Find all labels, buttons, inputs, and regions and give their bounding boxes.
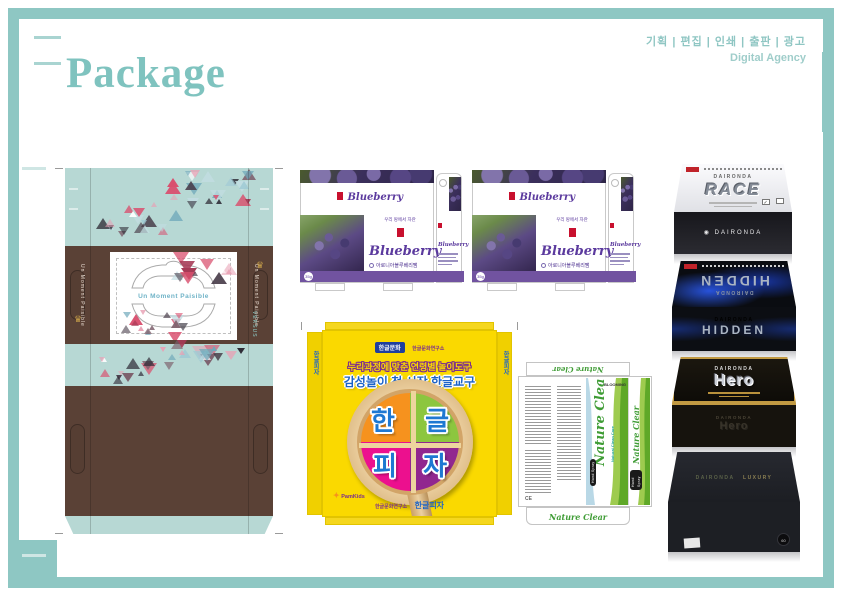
crown-icon: ♛ bbox=[256, 260, 264, 271]
luxury-box-front: 60 bbox=[668, 502, 800, 552]
front-brand-logo: ◉ DAIRONDA bbox=[674, 229, 792, 236]
checkbox-icon bbox=[776, 198, 784, 204]
side-face: Nature Clear Hand Spray bbox=[628, 378, 650, 505]
brand-logo: DAIRONDA bbox=[672, 289, 796, 295]
triangle-shape bbox=[168, 354, 176, 360]
triangle-shape bbox=[201, 171, 215, 182]
fold-dash bbox=[260, 208, 269, 210]
right-flap: 한글피자 bbox=[497, 332, 512, 515]
triangle-shape bbox=[179, 349, 191, 358]
circle-bullet-icon bbox=[369, 263, 374, 268]
side-label: 한글피자 bbox=[501, 351, 510, 375]
triangle-shape bbox=[126, 358, 140, 369]
triangle-shape bbox=[118, 376, 124, 381]
slice-gap bbox=[411, 391, 416, 493]
top-flap-logo: Blueberry bbox=[509, 187, 575, 205]
fold-dash bbox=[260, 188, 269, 190]
option-row: 아로니아블루베리쨈 bbox=[369, 262, 431, 269]
pizza-graphic: 한 글 피 자 bbox=[357, 389, 463, 495]
triangle-shape bbox=[143, 357, 155, 366]
fine-print-lines bbox=[674, 392, 794, 397]
triangle-shape bbox=[96, 218, 110, 229]
main-logo: Blueberry bbox=[541, 224, 603, 260]
berry-photo-strip bbox=[300, 170, 434, 183]
triangle-shape bbox=[157, 224, 167, 232]
white-label bbox=[684, 537, 701, 548]
title-line-decoration bbox=[34, 62, 61, 65]
brand-text: Un Moment Paisible bbox=[110, 293, 237, 300]
fine-print-line bbox=[702, 265, 786, 267]
pizza-letter: 피 bbox=[373, 446, 397, 483]
triangle-shape bbox=[118, 371, 124, 376]
right-accent-bar bbox=[822, 52, 833, 132]
triangle-shape bbox=[133, 208, 145, 217]
luxury-box-top: DAIRONDA LUXURY bbox=[668, 452, 800, 502]
blueberry-bowl-photo bbox=[472, 215, 536, 271]
crop-mark bbox=[301, 322, 302, 330]
top-flap-logo: Blueberry bbox=[337, 187, 403, 205]
triangle-shape bbox=[212, 190, 222, 198]
reflection bbox=[668, 552, 800, 562]
triangle-shape bbox=[185, 171, 191, 176]
triangle-shape bbox=[199, 351, 211, 360]
triangle-shape bbox=[134, 222, 148, 233]
fine-print-block bbox=[525, 386, 551, 444]
red-square-logo bbox=[509, 192, 515, 200]
triangle-cluster bbox=[160, 168, 260, 213]
triangle-shape bbox=[113, 376, 123, 384]
tagline: 우리 땅에서 자란 bbox=[369, 217, 431, 223]
crown-icon: ♛ bbox=[74, 314, 82, 325]
product-name: Hero bbox=[672, 420, 796, 432]
triangle-shape bbox=[187, 198, 199, 207]
badge-row: 한글문화 한글문화연구소 bbox=[323, 337, 496, 355]
triangle-shape bbox=[167, 178, 179, 187]
fine-print-block bbox=[525, 450, 551, 494]
red-square-logo bbox=[610, 223, 614, 228]
triangle-shape bbox=[99, 357, 105, 362]
pizza-letter: 자 bbox=[423, 446, 447, 483]
product-name: LUXURY bbox=[743, 475, 772, 481]
red-label-chip bbox=[684, 264, 697, 269]
product-box-race: DAIRONDA RACE ✓ ◉ DAIRONDA bbox=[674, 164, 792, 264]
product-name: Hero bbox=[674, 372, 794, 390]
triangle-shape bbox=[124, 205, 134, 213]
side-tab-text: Blueberry bbox=[610, 215, 632, 265]
bottom-flap: Nature Clear bbox=[526, 507, 630, 525]
triangle-shape bbox=[204, 345, 220, 357]
product-name: HIDDEN bbox=[672, 273, 796, 289]
triangle-shape bbox=[122, 373, 134, 382]
page-title: Package bbox=[66, 49, 226, 98]
red-square-logo bbox=[397, 228, 404, 237]
triangle-shape bbox=[164, 362, 174, 370]
berry-twig-photo bbox=[621, 177, 633, 211]
triangle-shape bbox=[142, 361, 154, 370]
fine-print-line bbox=[438, 264, 452, 266]
triangle-shape bbox=[160, 347, 166, 352]
option-label: 아로니아블루베리쨈 bbox=[376, 262, 417, 269]
fine-print-line bbox=[704, 168, 782, 170]
triangle-cluster bbox=[90, 200, 185, 244]
weight-badge: 35g bbox=[304, 272, 313, 281]
headline-small: 누리과정에 맞춘 연령별 놀이도구 bbox=[323, 360, 496, 373]
triangle-shape bbox=[190, 170, 200, 178]
fine-print-line bbox=[438, 257, 456, 259]
bottom-flap bbox=[383, 283, 413, 291]
top-flap: Nature Clear bbox=[526, 362, 630, 376]
fine-print-line bbox=[709, 202, 757, 204]
triangle-shape bbox=[170, 194, 178, 200]
top-name-upside-down: DAIRONDA HIDDEN bbox=[672, 273, 796, 295]
triangle-shape bbox=[225, 177, 237, 186]
product-box-hidden: DAIRONDA HIDDEN DAIRONDA HIDDEN bbox=[672, 261, 796, 361]
nature-clear-dieline: Nature Clear CE ▲ BLOOMING Nature Clear … bbox=[518, 362, 652, 525]
fine-print-line bbox=[708, 392, 760, 394]
blueberry-script: Blueberry bbox=[369, 244, 441, 259]
crop-mark bbox=[517, 322, 518, 330]
fine-print-panel: CE bbox=[520, 378, 586, 505]
blueberry-dieline-2: Blueberry 우리 땅에서 자란 Blueberry 아로니아블루베리쨈 … bbox=[469, 165, 637, 293]
triangle-shape bbox=[187, 201, 197, 209]
corner-label: VERSUS bbox=[251, 311, 257, 338]
triangle-shape bbox=[118, 231, 126, 237]
pizza-letter: 글 bbox=[425, 401, 449, 438]
bottom-flap bbox=[487, 283, 517, 291]
brand-note: 한글문화연구소 bbox=[412, 346, 444, 352]
purple-band: 35g bbox=[472, 271, 636, 282]
triangle-shape bbox=[131, 361, 137, 366]
triangle-shape bbox=[169, 210, 183, 221]
crop-mark bbox=[55, 168, 63, 169]
top-logo-row: DAIRONDA LUXURY bbox=[668, 466, 800, 484]
product-name: Nature Clear bbox=[631, 406, 641, 464]
product-name: HIDDEN bbox=[672, 323, 796, 337]
top-flap bbox=[325, 322, 494, 330]
fold-dash bbox=[69, 188, 78, 190]
handle-cutout bbox=[70, 424, 85, 474]
fine-print-line bbox=[610, 264, 624, 266]
red-square-logo bbox=[438, 223, 442, 228]
category-label: Hand Spray bbox=[590, 459, 596, 486]
agency-text: Digital Agency bbox=[646, 52, 806, 64]
hidden-box-top: DAIRONDA HIDDEN bbox=[672, 261, 796, 307]
hangul-pizza-package: 한글피자 한글피자 한글문화 한글문화연구소 누리과정에 맞춘 연령별 놀이도구… bbox=[307, 322, 512, 525]
left-dash-decoration bbox=[22, 554, 46, 557]
red-label-chip bbox=[686, 167, 699, 172]
triangle-shape bbox=[140, 225, 150, 233]
main-logo: Blueberry bbox=[369, 224, 431, 260]
crop-mark bbox=[275, 168, 283, 169]
product-subtitle: Natural Clean Care bbox=[610, 426, 615, 462]
hang-hole bbox=[611, 179, 619, 187]
triangle-shape bbox=[141, 363, 157, 375]
title-line-decoration bbox=[34, 36, 61, 39]
product-box-luxury: DAIRONDA LUXURY 60 bbox=[668, 452, 800, 562]
berry-twig-photo bbox=[449, 177, 461, 211]
weight-badge: 35g bbox=[476, 272, 485, 281]
purple-band: 35g bbox=[300, 271, 464, 282]
blueberry-script: Blueberry bbox=[347, 192, 403, 203]
blueberry-script: Blueberry bbox=[541, 244, 613, 259]
footer-note: 한글문화연구소 bbox=[375, 504, 407, 510]
corner-accent-block bbox=[8, 540, 57, 588]
triangle-shape bbox=[205, 198, 213, 204]
dieline-bottom-panel bbox=[65, 386, 273, 516]
blueberry-dieline-1: Blueberry 우리 땅에서 자란 Blueberry 아로니아블루베리쨈 … bbox=[297, 165, 465, 293]
triangle-shape bbox=[200, 354, 216, 366]
handle-cutout bbox=[253, 424, 268, 474]
left-flap: 한글피자 bbox=[307, 332, 322, 515]
triangle-shape bbox=[129, 211, 137, 217]
left-dash-decoration bbox=[22, 167, 46, 170]
hidden-box-front: DAIRONDA HIDDEN bbox=[672, 307, 796, 351]
triangle-shape bbox=[199, 349, 215, 361]
triangle-shape bbox=[108, 225, 114, 230]
option-row: 아로니아블루베리쨈 bbox=[541, 262, 603, 269]
triangle-shape bbox=[237, 348, 245, 354]
pizza-letter: 한 bbox=[371, 401, 395, 438]
triangle-shape bbox=[213, 195, 219, 200]
red-square-logo bbox=[337, 192, 343, 200]
berry-photo-strip bbox=[472, 170, 606, 183]
triangle-shape bbox=[186, 172, 198, 181]
triangle-shape bbox=[101, 357, 107, 362]
bottom-flap bbox=[315, 283, 345, 291]
triangle-shape bbox=[119, 227, 129, 235]
brand-logo: DAIRONDA bbox=[696, 475, 735, 481]
circle-bullet-icon bbox=[541, 263, 546, 268]
dieline-top-panel bbox=[65, 168, 273, 246]
fine-print-line bbox=[438, 253, 458, 255]
main-panel-text: 우리 땅에서 자란 Blueberry 아로니아블루베리쨈 블루베리쨈 bbox=[369, 217, 431, 278]
triangle-shape bbox=[216, 199, 222, 204]
triangle-shape bbox=[141, 215, 157, 227]
red-square-logo bbox=[569, 228, 576, 237]
crop-mark bbox=[55, 533, 63, 534]
checkbox-icon: ✓ bbox=[762, 199, 770, 205]
fine-print-block bbox=[557, 386, 581, 482]
option-label: 아로니아블루베리쨈 bbox=[548, 262, 589, 269]
triangle-shape bbox=[138, 371, 144, 376]
triangle-shape bbox=[100, 369, 110, 377]
hero-box-front: DAIRONDA Hero bbox=[672, 403, 796, 447]
bottom-flap bbox=[555, 283, 585, 291]
footer-row: 한글문화연구소 한글피자 bbox=[323, 495, 496, 513]
fold-dash bbox=[69, 208, 78, 210]
dieline-bottom-flap bbox=[65, 516, 273, 534]
flap-title: Nature Clear bbox=[527, 512, 629, 522]
flap-title: Nature Clear bbox=[527, 365, 629, 374]
round-badge: 60 bbox=[777, 533, 790, 546]
spec-icons: ✓ bbox=[760, 191, 784, 209]
side-label: 한글피자 bbox=[311, 351, 320, 375]
fine-print-line bbox=[610, 257, 628, 259]
triangle-shape bbox=[105, 219, 115, 227]
blueberry-script: Blueberry bbox=[610, 242, 641, 248]
services-text: 기획 | 편집 | 인쇄 | 출판 | 광고 bbox=[646, 33, 806, 49]
triangle-shape bbox=[199, 350, 207, 356]
triangle-shape bbox=[116, 375, 122, 380]
race-box-top: DAIRONDA RACE ✓ bbox=[674, 164, 792, 212]
triangle-cluster bbox=[157, 340, 252, 370]
triangle-shape bbox=[165, 182, 181, 194]
fine-print-line bbox=[719, 396, 749, 398]
triangle-shape bbox=[193, 351, 209, 363]
brand-badge: 한글문화 bbox=[375, 342, 405, 353]
ce-mark: CE bbox=[525, 496, 532, 502]
pizza-main-panel: 한글문화 한글문화연구소 누리과정에 맞춘 연령별 놀이도구 감성놀이 첫 시작… bbox=[322, 330, 497, 517]
fine-print-line bbox=[438, 260, 458, 262]
blueberry-bowl-photo bbox=[300, 215, 364, 271]
header-right: 기획 | 편집 | 인쇄 | 출판 | 광고 Digital Agency bbox=[646, 33, 806, 64]
triangle-shape bbox=[231, 179, 239, 185]
side-tab-text: Blueberry bbox=[438, 215, 460, 265]
portfolio-page: Package 기획 | 편집 | 인쇄 | 출판 | 광고 Digital A… bbox=[0, 0, 842, 596]
center-artwork-card: Un Moment Paisible bbox=[110, 252, 237, 340]
blueberry-script: Blueberry bbox=[519, 192, 575, 203]
triangle-shape bbox=[158, 227, 168, 235]
triangle-shape bbox=[141, 220, 147, 225]
main-face: ▲ BLOOMING Nature Clear Natural Clean Ca… bbox=[586, 378, 628, 505]
fold-line bbox=[248, 168, 249, 534]
hang-hole bbox=[439, 179, 447, 187]
hero-box-top: DAIRONDA Hero bbox=[672, 357, 796, 403]
triangle-shape bbox=[211, 346, 217, 351]
crop-mark bbox=[275, 533, 283, 534]
triangle-shape bbox=[192, 346, 208, 358]
race-box-front: ◉ DAIRONDA bbox=[674, 212, 792, 254]
product-name: Nature Clear bbox=[593, 378, 608, 466]
footer-name: 한글피자 bbox=[415, 501, 444, 510]
dieline-mint-band bbox=[65, 344, 273, 386]
triangle-shape bbox=[151, 202, 157, 207]
triangle-shape bbox=[179, 350, 185, 355]
triangle-shape bbox=[213, 353, 223, 361]
bottom-flap bbox=[325, 517, 494, 525]
fine-print-line bbox=[610, 253, 630, 255]
triangle-shape bbox=[132, 215, 144, 224]
triangle-shape bbox=[210, 190, 226, 202]
triangle-shape bbox=[185, 181, 197, 190]
main-panel-text: 우리 땅에서 자란 Blueberry 아로니아블루베리쨈 블루베리쨈 bbox=[541, 217, 603, 278]
fine-print-line bbox=[610, 260, 630, 262]
product-box-hero: DAIRONDA Hero DAIRONDA Hero bbox=[672, 357, 796, 457]
triangle-shape bbox=[225, 351, 237, 360]
fine-print-line bbox=[714, 206, 752, 208]
fold-line bbox=[90, 168, 91, 534]
package-dieline-un-moment: Un Moment Paisible ♛ Un Moment Paisible … bbox=[65, 158, 273, 536]
tagline: 우리 땅에서 자란 bbox=[541, 217, 603, 223]
blueberry-script: Blueberry bbox=[438, 242, 469, 248]
triangle-shape bbox=[186, 183, 202, 195]
category-label: Hand Spray bbox=[630, 470, 642, 490]
triangle-shape bbox=[106, 224, 114, 230]
